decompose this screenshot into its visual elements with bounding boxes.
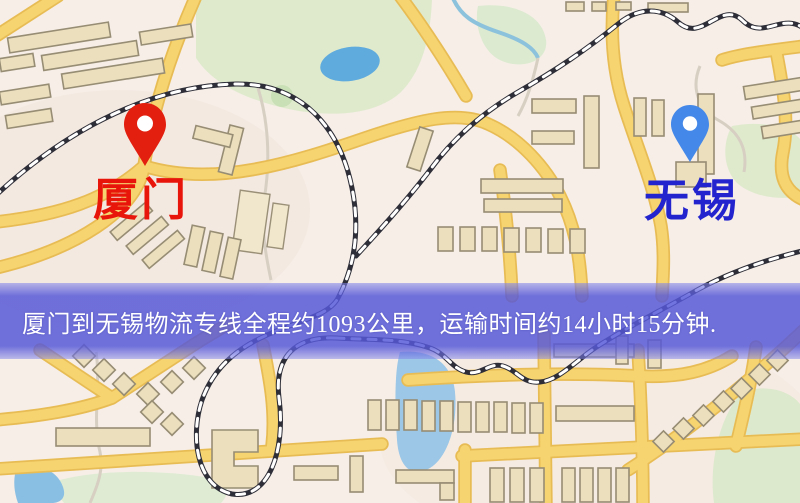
destination-pin-shape (671, 105, 709, 162)
destination-pin-hole (683, 116, 697, 130)
map-background (0, 0, 800, 503)
origin-pin-icon[interactable] (122, 102, 168, 168)
route-info-banner: 厦门到无锡物流专线全程约1093公里，运输时间约14小时15分钟. (0, 283, 800, 359)
logistics-map-image: 厦门 无锡 厦门到无锡物流专线全程约1093公里，运输时间约14小时15分钟. (0, 0, 800, 503)
origin-pin-hole (137, 116, 153, 132)
destination-label: 无锡 (644, 179, 740, 224)
origin-pin-shape (124, 103, 166, 166)
destination-pin-icon[interactable] (669, 104, 711, 164)
origin-label: 厦门 (93, 178, 189, 223)
route-info-text: 厦门到无锡物流专线全程约1093公里，运输时间约14小时15分钟. (0, 304, 717, 339)
